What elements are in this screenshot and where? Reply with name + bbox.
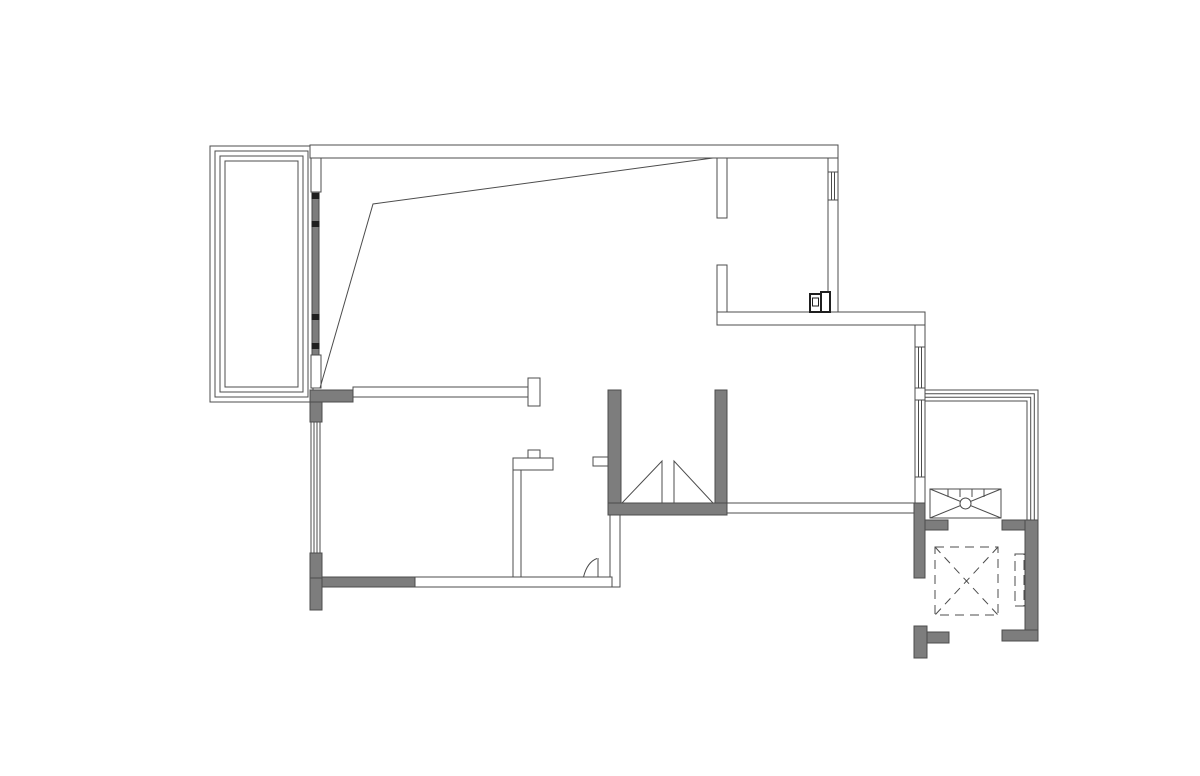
- wall-divider-A: [353, 387, 528, 397]
- wall-divider-B-post: [528, 450, 540, 458]
- elevator-diagonal-2: [935, 547, 998, 615]
- sliding-door-roller-2: [312, 221, 320, 227]
- shaft-wall-west: [608, 390, 621, 503]
- balcony-left-rail-2: [215, 151, 308, 397]
- wall-top: [310, 145, 838, 158]
- wall-balcony-jamb-bottom: [311, 355, 321, 388]
- wall-divider-B-top: [513, 458, 553, 470]
- wall-kitchen-south-gray: [322, 577, 415, 587]
- floor-plan: [0, 0, 1200, 776]
- wall-divider-A-endcap: [528, 378, 540, 406]
- floor-plan-svg: [0, 0, 1200, 776]
- core-wall-north-left: [925, 520, 948, 530]
- wall-kitchen-west-tail: [310, 578, 322, 610]
- wall-corner-nw-horizontal: [310, 390, 353, 402]
- wall-stub-upper-2: [717, 265, 727, 312]
- wall-balcony-jamb-top: [311, 158, 321, 192]
- core-wall-west-lower-h: [927, 632, 949, 643]
- shaft-wall-south: [608, 503, 727, 515]
- wall-dining-south: [727, 503, 915, 513]
- door-swing-arc: [584, 559, 598, 578]
- window-east-1: [915, 347, 925, 388]
- window-east-2: [915, 400, 925, 477]
- wall-below-shaft: [610, 515, 620, 587]
- core-wall-west-upper: [914, 503, 925, 578]
- shaft-triangle-right: [674, 461, 713, 503]
- ceiling-break-line: [320, 158, 713, 388]
- shaft-triangle-left: [622, 461, 662, 503]
- sliding-door-track: [312, 192, 319, 355]
- core-wall-west-lower: [914, 626, 927, 658]
- wall-divider-B-vertical: [513, 458, 521, 577]
- wall-stub-at-shaft: [593, 457, 610, 466]
- core-wall-east: [1025, 520, 1038, 641]
- wall-east-mid-1: [915, 325, 925, 347]
- wall-corner-nw-vertical: [310, 402, 322, 422]
- balcony-left-rail-inner: [225, 161, 298, 387]
- wall-kitchen-west-lower: [310, 553, 322, 578]
- wall-kitchen-south-thin: [415, 577, 612, 587]
- wall-mid-horizontal: [717, 312, 925, 325]
- balcony-left-rail-3: [220, 156, 303, 392]
- sliding-door-roller-3: [312, 314, 320, 320]
- sliding-door-roller-1: [312, 193, 320, 199]
- window-east-upper: [828, 172, 838, 200]
- window-kitchen-west: [311, 422, 320, 553]
- meter-box-right: [821, 292, 830, 312]
- radiator-hub: [960, 498, 971, 509]
- elevator-door-dashed: [1015, 554, 1024, 606]
- core-wall-south-right: [1002, 630, 1038, 641]
- wall-east-mid-2: [915, 388, 925, 400]
- sliding-door-roller-4: [312, 343, 320, 349]
- shaft-wall-east: [715, 390, 727, 503]
- wall-stub-upper-1: [717, 158, 727, 218]
- wall-east-mid-3: [915, 477, 925, 503]
